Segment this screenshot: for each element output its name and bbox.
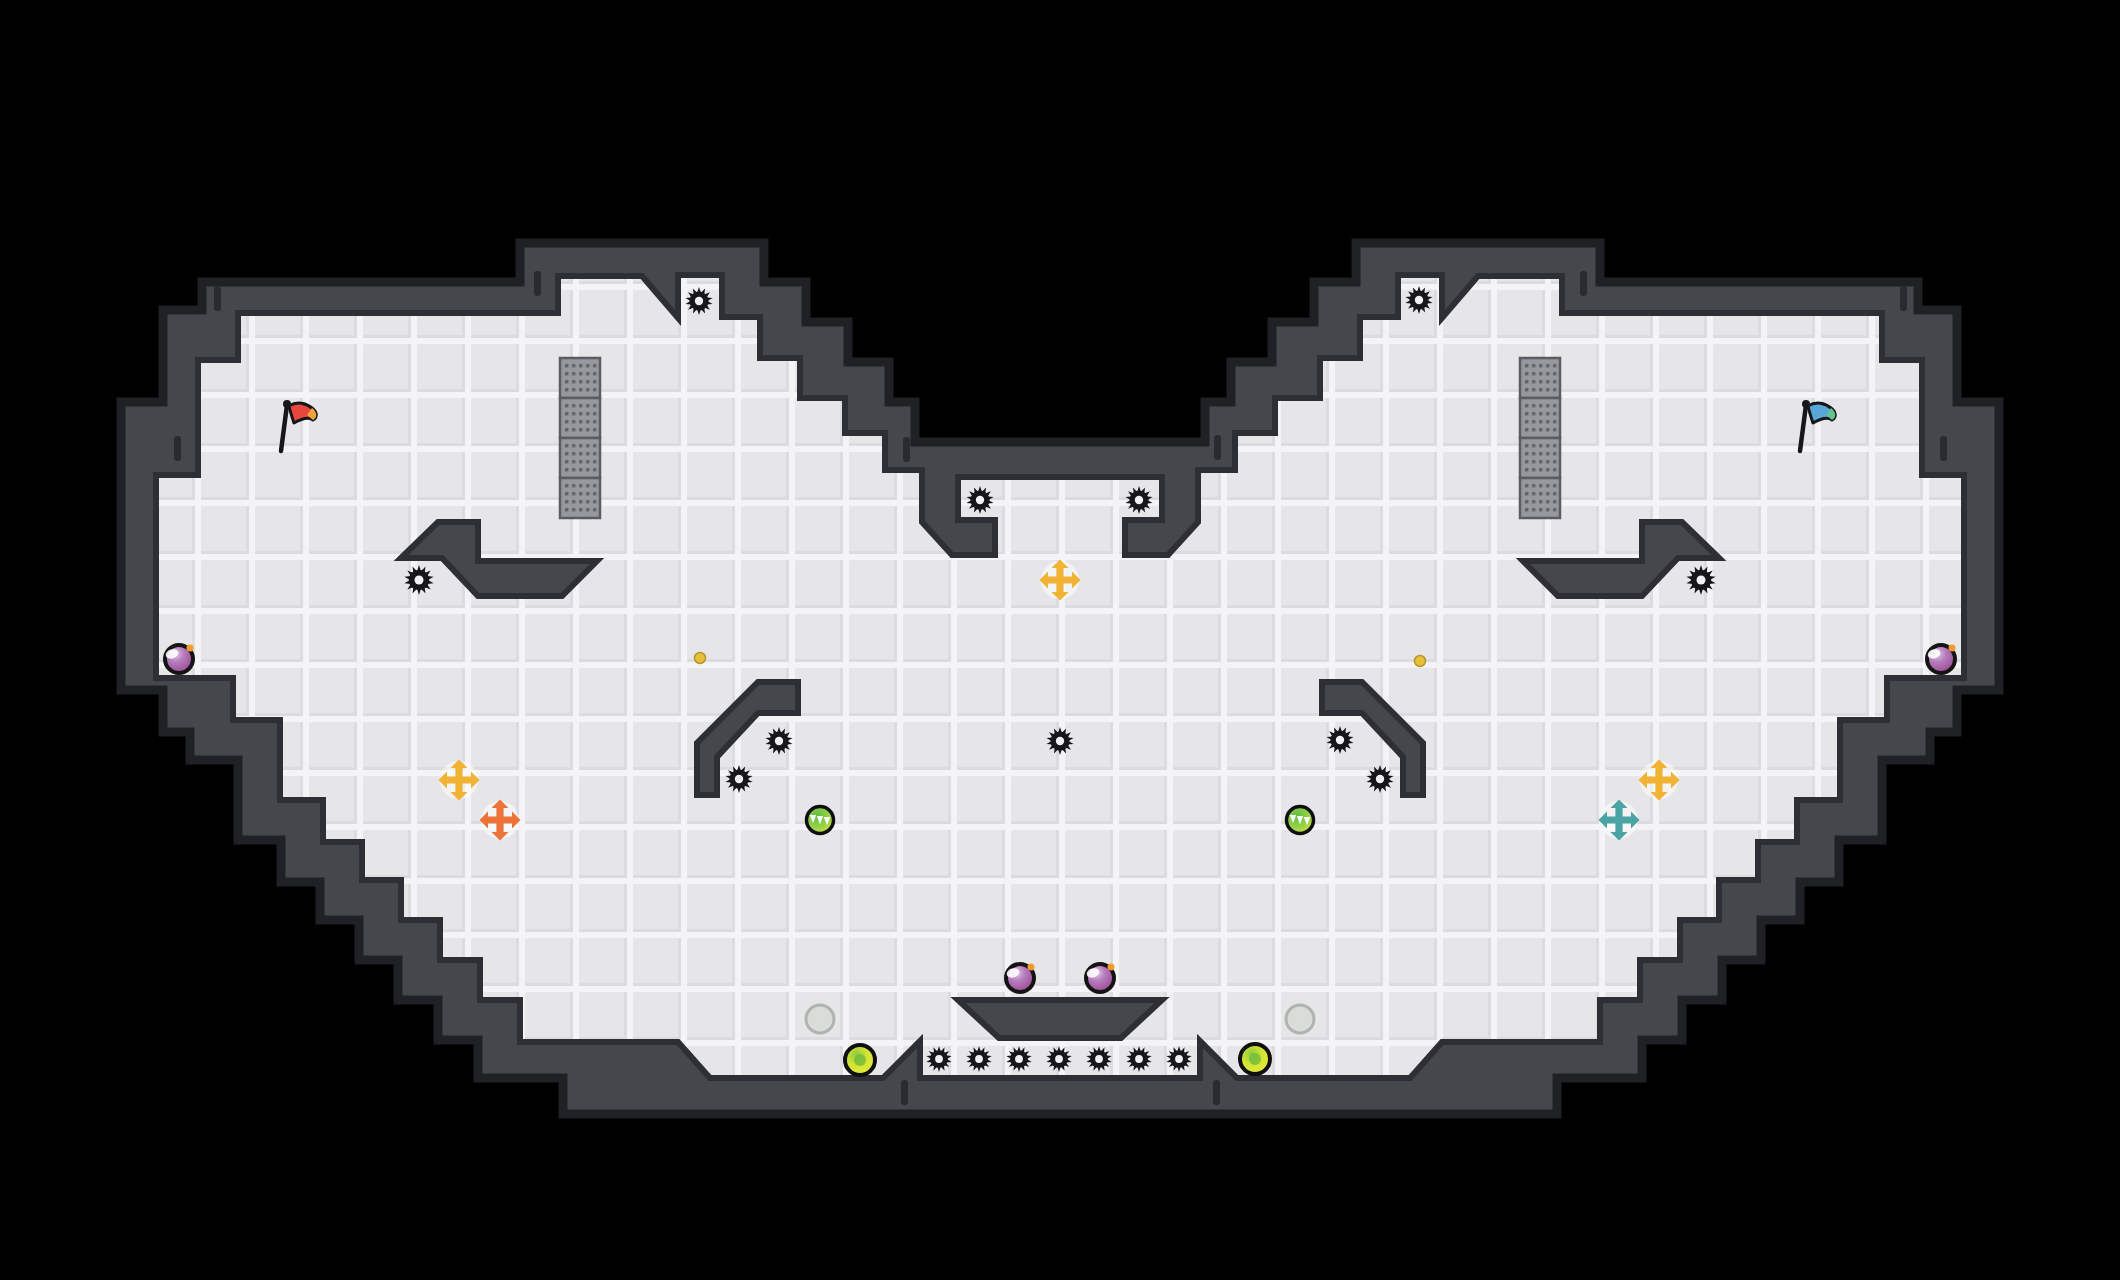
grate-dot: [579, 364, 582, 367]
grate-dot: [1546, 364, 1549, 367]
grate-dot: [593, 372, 596, 375]
gear-hole: [1015, 1055, 1023, 1063]
grate-dot: [572, 484, 575, 487]
grate-dot: [1525, 404, 1528, 407]
grate-dot: [565, 412, 568, 415]
grate-dot: [1525, 468, 1528, 471]
grate-dot: [1539, 420, 1542, 423]
gear-hole: [1055, 1055, 1063, 1063]
grate-dot: [1532, 460, 1535, 463]
grate-dot: [1553, 452, 1556, 455]
grate-dot: [572, 444, 575, 447]
gear-hole: [1336, 736, 1344, 744]
grate-dot: [1525, 460, 1528, 463]
grate-dot: [1546, 492, 1549, 495]
grate-dot: [586, 460, 589, 463]
grate-dot: [593, 460, 596, 463]
grate-dot: [593, 404, 596, 407]
grate-dot: [1553, 492, 1556, 495]
grate-dot: [593, 452, 596, 455]
grate-dot: [565, 452, 568, 455]
gear-hole: [1697, 576, 1706, 585]
grate-dot: [1532, 388, 1535, 391]
wall-tick: [1940, 436, 1947, 461]
grate-dot: [593, 484, 596, 487]
wall-tick: [214, 286, 221, 311]
grate-dot: [586, 484, 589, 487]
purple-bomb-orb[interactable]: [1006, 964, 1035, 993]
grate-dot: [1525, 508, 1528, 511]
grate-dot: [1553, 500, 1556, 503]
orb-spark: [1108, 964, 1115, 971]
purple-bomb-orb[interactable]: [1927, 645, 1956, 674]
grate-dot: [572, 364, 575, 367]
grate-dot: [579, 468, 582, 471]
grate-dot: [1525, 492, 1528, 495]
gear-hole: [415, 576, 424, 585]
grate-dot: [586, 468, 589, 471]
grate-dot: [1532, 484, 1535, 487]
grate-dot: [565, 404, 568, 407]
grate-dot: [586, 404, 589, 407]
grate-dot: [593, 468, 596, 471]
grate-dot: [572, 372, 575, 375]
purple-bomb-orb[interactable]: [1086, 964, 1115, 993]
grate-dot: [1546, 508, 1549, 511]
gear-hole: [1135, 496, 1143, 504]
wall-tick: [1900, 286, 1907, 311]
grate-dot: [593, 380, 596, 383]
grate-dot: [1553, 484, 1556, 487]
green-pickup-orb[interactable]: [807, 807, 834, 834]
grate-dot: [593, 444, 596, 447]
grate-dot: [1546, 468, 1549, 471]
grate-dot: [579, 412, 582, 415]
gear-hole: [735, 775, 743, 783]
grate-dot: [1546, 428, 1549, 431]
grate-dot: [1539, 484, 1542, 487]
grate-dot: [1553, 428, 1556, 431]
wall-tick: [174, 436, 181, 461]
grate-dot: [565, 388, 568, 391]
grate-dot: [579, 484, 582, 487]
grate-dot: [565, 492, 568, 495]
grate-dot: [1539, 372, 1542, 375]
grate-dot: [572, 468, 575, 471]
gear-hole: [775, 737, 783, 745]
grate-dot: [1532, 492, 1535, 495]
grate-dot: [565, 364, 568, 367]
grate-dot: [565, 380, 568, 383]
grate-dot: [1532, 380, 1535, 383]
grate-dot: [1525, 500, 1528, 503]
orb-spark: [1028, 964, 1035, 971]
grate-dot: [565, 428, 568, 431]
grate-dot: [586, 388, 589, 391]
grate-dot: [1539, 500, 1542, 503]
gear-hole: [695, 297, 703, 305]
grate-dot: [1553, 508, 1556, 511]
grate-dot: [1553, 420, 1556, 423]
grate-dot: [572, 508, 575, 511]
flag-knob: [283, 400, 291, 408]
grate-dot: [1539, 508, 1542, 511]
grate-dot: [1525, 444, 1528, 447]
gear-hole: [1175, 1055, 1183, 1063]
lime-pickup-orb[interactable]: [1240, 1044, 1270, 1074]
grate-dot: [572, 500, 575, 503]
grate-dot: [586, 500, 589, 503]
grate-dot: [1525, 428, 1528, 431]
grate-dot: [579, 380, 582, 383]
small-yellow-dot[interactable]: [1415, 656, 1426, 667]
grate-dot: [1539, 452, 1542, 455]
grate-dot: [1539, 428, 1542, 431]
grate-dot: [593, 508, 596, 511]
grate-dot: [586, 412, 589, 415]
grate-dot: [572, 428, 575, 431]
grate-dot: [1532, 420, 1535, 423]
grate-dot: [1525, 364, 1528, 367]
grate-dot: [1546, 404, 1549, 407]
wall-tick: [534, 271, 541, 296]
grate-dot: [586, 428, 589, 431]
wall-tick: [1580, 271, 1587, 296]
ghost-respawn-orb: [806, 1005, 834, 1033]
grate-dot: [1525, 372, 1528, 375]
grate-dot: [1553, 444, 1556, 447]
grate-dot: [1539, 444, 1542, 447]
grate-dot: [1553, 380, 1556, 383]
grate-dot: [593, 388, 596, 391]
grate-dot: [579, 500, 582, 503]
grate-dot: [1539, 380, 1542, 383]
grate-dot: [1532, 364, 1535, 367]
grate-dot: [1539, 412, 1542, 415]
grate-dot: [572, 460, 575, 463]
grate-dot: [572, 404, 575, 407]
wall-tick: [1213, 1080, 1220, 1105]
center-trapezoid-platform: [958, 1000, 1162, 1038]
grate-dot: [593, 412, 596, 415]
green-pickup-orb[interactable]: [1287, 807, 1314, 834]
grate-column-left: [560, 358, 600, 518]
grate-dot: [586, 420, 589, 423]
grate-dot: [1525, 412, 1528, 415]
grate-dot: [1546, 444, 1549, 447]
grate-dot: [1546, 412, 1549, 415]
grate-dot: [1546, 460, 1549, 463]
grate-dot: [579, 420, 582, 423]
ghost-respawn-orb: [1286, 1005, 1314, 1033]
grate-dot: [1553, 388, 1556, 391]
gear-hole: [1135, 1055, 1143, 1063]
orb-core: [854, 1054, 866, 1066]
grate-dot: [1525, 388, 1528, 391]
grate-dot: [579, 460, 582, 463]
grate-dot: [1546, 420, 1549, 423]
grate-dot: [1539, 468, 1542, 471]
gear-hole: [1376, 775, 1384, 783]
grate-dot: [586, 444, 589, 447]
grate-dot: [1525, 452, 1528, 455]
wall-tick: [901, 1080, 908, 1105]
grate-dot: [1546, 452, 1549, 455]
grate-column-right: [1520, 358, 1560, 518]
grate-dot: [1546, 388, 1549, 391]
grate-dot: [565, 444, 568, 447]
grate-dot: [572, 380, 575, 383]
flag-knob: [1802, 400, 1810, 408]
grate-dot: [586, 508, 589, 511]
grate-dot: [1553, 412, 1556, 415]
orb-spark: [187, 645, 194, 652]
gear-hole: [975, 1055, 983, 1063]
grate-dot: [1553, 404, 1556, 407]
grate-dot: [1553, 468, 1556, 471]
grate-dot: [579, 388, 582, 391]
grate-dot: [593, 420, 596, 423]
grate-dot: [586, 452, 589, 455]
grate-dot: [565, 420, 568, 423]
grate-dot: [1532, 508, 1535, 511]
grate-dot: [1553, 364, 1556, 367]
grate-dot: [593, 428, 596, 431]
grate-dot: [565, 460, 568, 463]
grate-dot: [579, 372, 582, 375]
grate-dot: [565, 468, 568, 471]
grate-dot: [572, 388, 575, 391]
grate-dot: [1546, 500, 1549, 503]
grate-dot: [586, 492, 589, 495]
grate-dot: [1532, 452, 1535, 455]
grate-dot: [579, 428, 582, 431]
grate-dot: [1553, 372, 1556, 375]
grate-dot: [586, 380, 589, 383]
grate-dot: [1525, 484, 1528, 487]
grate-dot: [1525, 380, 1528, 383]
grate-dot: [1539, 388, 1542, 391]
grate-dot: [1546, 484, 1549, 487]
gear-hole: [1095, 1055, 1103, 1063]
game-viewport: [0, 0, 2120, 1280]
grate-dot: [1546, 380, 1549, 383]
orb-core: [1249, 1053, 1261, 1065]
grate-dot: [1532, 412, 1535, 415]
gear-hole: [1415, 296, 1423, 304]
grate-dot: [1532, 444, 1535, 447]
grate-dot: [586, 372, 589, 375]
grate-dot: [572, 492, 575, 495]
grate-dot: [1539, 404, 1542, 407]
small-yellow-dot[interactable]: [695, 653, 706, 664]
grate-dot: [1539, 364, 1542, 367]
grate-dot: [565, 372, 568, 375]
grate-dot: [565, 500, 568, 503]
grate-dot: [1532, 428, 1535, 431]
grate-dot: [1532, 468, 1535, 471]
grate-dot: [579, 492, 582, 495]
grate-dot: [593, 492, 596, 495]
grate-dot: [1553, 460, 1556, 463]
grate-dot: [593, 500, 596, 503]
grate-dot: [565, 508, 568, 511]
gear-hole: [1056, 737, 1064, 745]
grate-dot: [579, 452, 582, 455]
grate-dot: [579, 404, 582, 407]
grate-dot: [1532, 372, 1535, 375]
gear-hole: [935, 1055, 943, 1063]
gear-hole: [976, 496, 984, 504]
grate-dot: [579, 444, 582, 447]
grate-dot: [1532, 500, 1535, 503]
wall-tick: [1214, 435, 1221, 460]
grate-dot: [572, 452, 575, 455]
grate-dot: [565, 484, 568, 487]
grate-dot: [586, 364, 589, 367]
grate-dot: [579, 508, 582, 511]
grate-dot: [593, 364, 596, 367]
level-canvas: [0, 0, 2120, 1280]
wall-tick: [903, 437, 910, 462]
lime-pickup-orb[interactable]: [845, 1045, 875, 1075]
grate-dot: [1546, 372, 1549, 375]
grate-dot: [1539, 460, 1542, 463]
grate-dot: [1525, 420, 1528, 423]
grate-dot: [1539, 492, 1542, 495]
grate-dot: [1532, 404, 1535, 407]
grate-dot: [572, 420, 575, 423]
orb-spark: [1949, 645, 1956, 652]
purple-bomb-orb[interactable]: [165, 645, 194, 674]
grate-dot: [572, 412, 575, 415]
